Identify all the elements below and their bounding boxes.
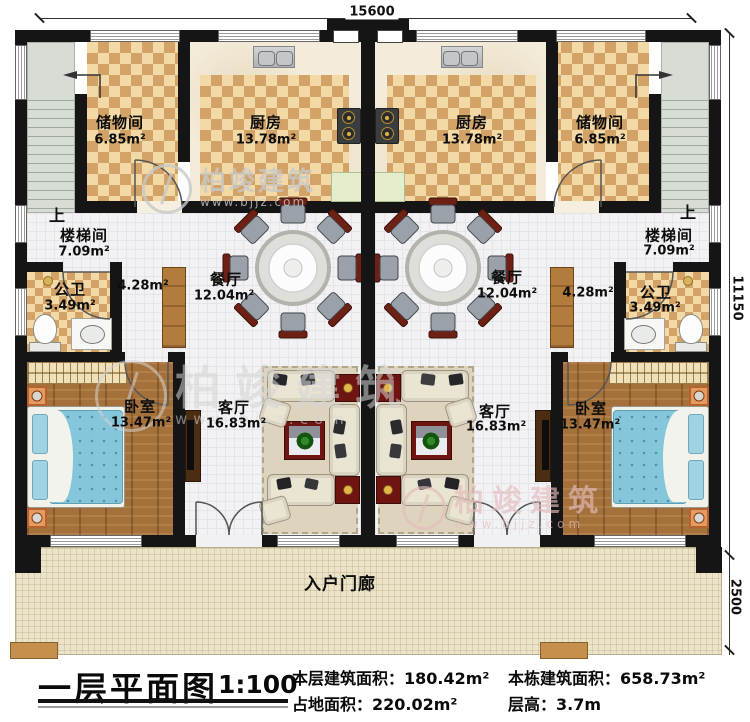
porch-corner-pier	[15, 547, 41, 573]
dimension-right-height: 11150	[730, 271, 745, 324]
porch-corner-pier	[696, 547, 722, 573]
stat-label: 本栋建筑面积：	[508, 669, 620, 688]
room-label-dining-right: 餐厅	[491, 267, 523, 288]
room-area-storage-left: 6.85m²	[94, 133, 145, 148]
room-area-storage-right: 6.85m²	[574, 133, 625, 148]
window	[377, 30, 403, 43]
porch-step	[540, 642, 588, 659]
room-label-kitchen-left: 厨房	[250, 112, 282, 133]
room-area-kitchen-right: 13.78m²	[442, 133, 502, 148]
room-area-bedroom-right: 13.47m²	[560, 418, 620, 433]
stat-value: 3.7m	[556, 695, 601, 714]
room-label-stairhall-right: 楼梯间	[645, 225, 693, 246]
room-label-bathroom-right: 公卫	[640, 282, 672, 303]
room-label-storage-right: 储物间	[576, 112, 624, 133]
entry-porch	[15, 547, 722, 655]
stat-label: 本层建筑面积：	[292, 669, 404, 688]
room-label-kitchen-right: 厨房	[456, 112, 488, 133]
stat-value: 658.73m²	[620, 669, 705, 688]
stat-building-area: 本栋建筑面积：658.73m²	[508, 665, 705, 689]
stairs-up-right: 上	[680, 199, 696, 223]
room-label-bathroom-left: 公卫	[54, 279, 86, 300]
plan-scale: 1:100	[218, 670, 298, 699]
top-cap-wall	[327, 18, 409, 30]
room-area-living-left: 16.83m²	[206, 417, 266, 432]
room-label-porch: 入户门廊	[304, 570, 376, 595]
room-area-corridor-right: 4.28m²	[562, 286, 613, 301]
title-underline-2	[38, 706, 288, 708]
room-area-stairhall-left: 7.09m²	[58, 245, 109, 260]
dimension-top-width: 15600	[345, 5, 398, 20]
room-label-living-right: 客厅	[479, 401, 511, 422]
room-area-bedroom-left: 13.47m²	[111, 416, 171, 431]
porch-step	[10, 642, 58, 659]
stat-floor-height: 层高：3.7m	[508, 691, 601, 715]
room-label-living-left: 客厅	[218, 397, 250, 418]
room-area-living-right: 16.83m²	[466, 420, 526, 435]
stairs-up-left: 上	[49, 202, 65, 226]
title-underline	[38, 699, 288, 703]
room-area-kitchen-left: 13.78m²	[236, 133, 296, 148]
window	[333, 30, 359, 43]
stat-label: 占地面积：	[292, 695, 372, 714]
room-area-stairhall-right: 7.09m²	[643, 244, 694, 259]
party-wall	[361, 30, 375, 547]
floor-plan-page: 15600 11150 2500 柏竣建筑www.bjjz.com 柏竣建筑ww…	[0, 0, 750, 722]
stat-floor-area: 本层建筑面积：180.42m²	[292, 665, 489, 689]
room-area-bathroom-left: 3.49m²	[44, 299, 95, 314]
room-label-stairhall-left: 楼梯间	[60, 225, 108, 246]
room-label-storage-left: 储物间	[96, 112, 144, 133]
stat-land-area: 占地面积：220.02m²	[292, 691, 457, 715]
stat-value: 180.42m²	[404, 669, 489, 688]
room-area-corridor-left: 4.28m²	[117, 279, 168, 294]
room-label-bedroom-left: 卧室	[124, 396, 156, 417]
room-area-bathroom-right: 3.49m²	[629, 301, 680, 316]
stat-label: 层高：	[508, 695, 556, 714]
room-label-dining-left: 餐厅	[210, 269, 242, 290]
room-area-dining-left: 12.04m²	[194, 289, 254, 304]
room-label-bedroom-right: 卧室	[575, 398, 607, 419]
dimension-porch-depth: 2500	[728, 575, 743, 619]
stat-value: 220.02m²	[372, 695, 457, 714]
room-area-dining-right: 12.04m²	[477, 287, 537, 302]
